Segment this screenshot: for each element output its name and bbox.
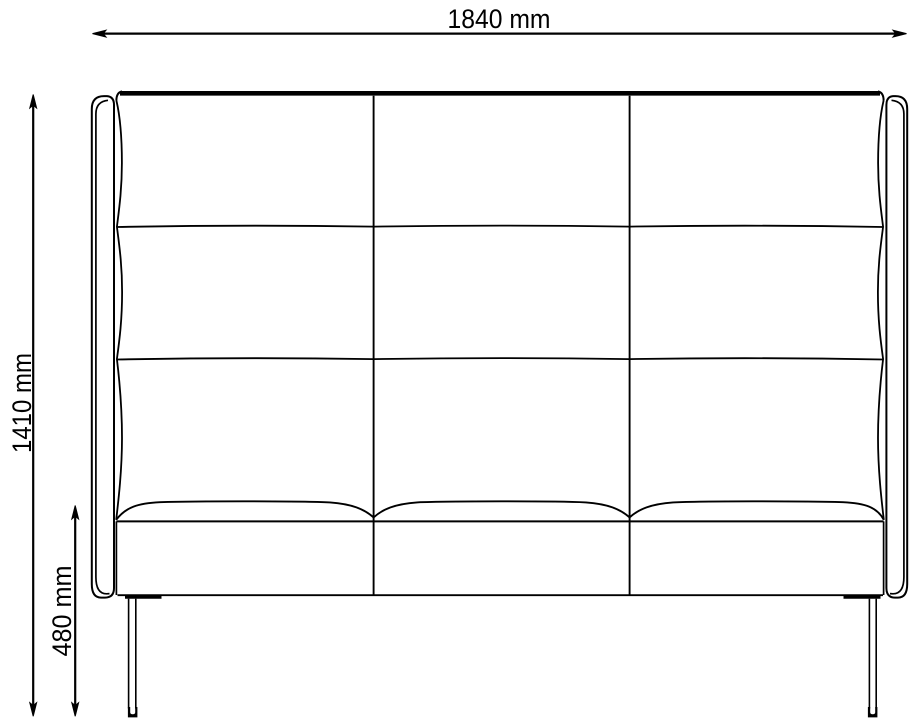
svg-text:1410 mm: 1410 mm [7,353,37,453]
svg-text:1840 mm: 1840 mm [448,4,551,34]
svg-text:480 mm: 480 mm [47,566,77,657]
